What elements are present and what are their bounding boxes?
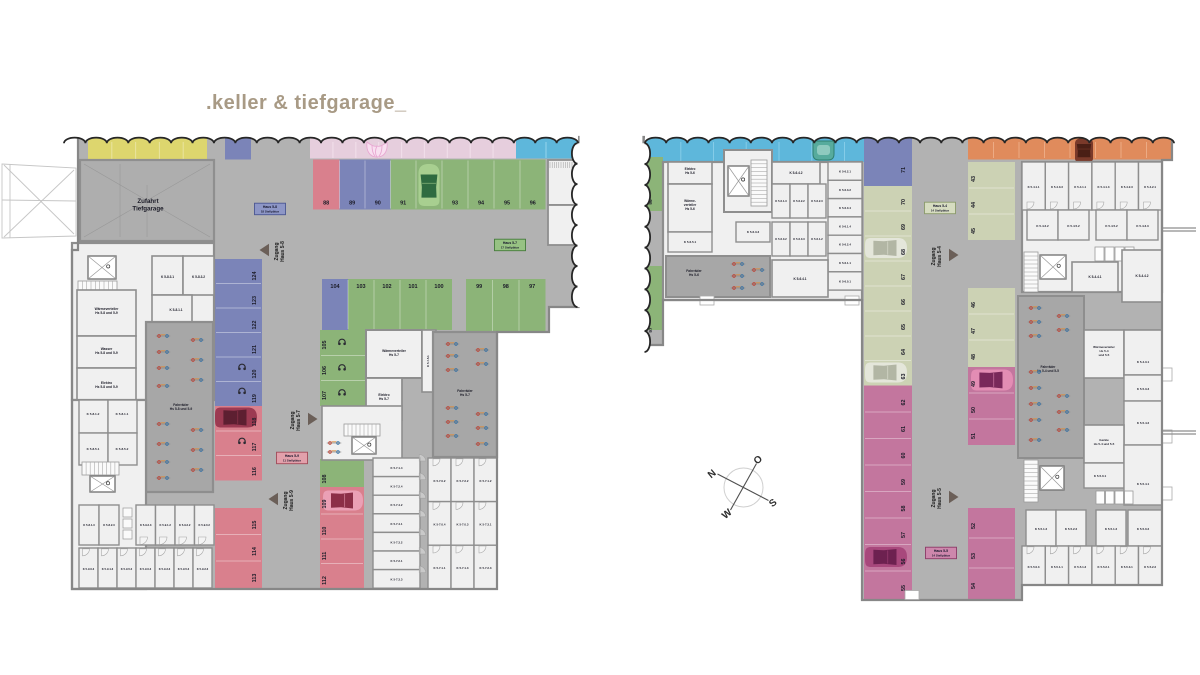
svg-text:57: 57 xyxy=(901,532,907,538)
svg-text:K 5-4.1.1: K 5-4.1.1 xyxy=(1028,185,1040,189)
svg-text:Hs 5-8 und 5-9: Hs 5-8 und 5-9 xyxy=(95,385,118,389)
svg-text:K 5-7.3.2: K 5-7.3.2 xyxy=(391,540,403,544)
svg-text:K 5-6.0.2: K 5-6.0.2 xyxy=(775,237,787,241)
svg-text:K 5-7.2.2: K 5-7.2.2 xyxy=(457,479,469,483)
svg-text:Hs 5-6: Hs 5-6 xyxy=(685,171,695,175)
svg-text:K 5-8.1.2: K 5-8.1.2 xyxy=(87,412,100,416)
svg-text:Haus 5-4: Haus 5-4 xyxy=(933,204,947,208)
svg-text:99: 99 xyxy=(476,284,482,290)
svg-text:K 5-7.0.2: K 5-7.0.2 xyxy=(434,479,446,483)
svg-text:K 5-9.3.3: K 5-9.3.3 xyxy=(159,567,171,571)
svg-text:89: 89 xyxy=(349,201,355,207)
svg-text:K 5-7.1.3: K 5-7.1.3 xyxy=(457,566,469,570)
svg-text:K 5-6.2.2: K 5-6.2.2 xyxy=(793,199,805,203)
svg-text:K 5-4.4.1: K 5-4.4.1 xyxy=(1088,275,1101,279)
svg-text:K 5-6.0.3: K 5-6.0.3 xyxy=(793,237,805,241)
svg-text:91: 91 xyxy=(400,201,406,207)
svg-text:115: 115 xyxy=(252,521,258,530)
svg-text:Hs 5-8 und 5-9: Hs 5-8 und 5-9 xyxy=(170,407,193,411)
svg-text:K 5-6.3.3: K 5-6.3.3 xyxy=(747,230,760,234)
svg-text:K 5-7.2.1: K 5-7.2.1 xyxy=(391,559,403,563)
svg-text:K 5-6.2.3: K 5-6.2.3 xyxy=(811,199,823,203)
svg-text:59: 59 xyxy=(901,479,907,485)
svg-text:K 5-5.3.3: K 5-5.3.3 xyxy=(1137,387,1150,391)
svg-text:119: 119 xyxy=(252,394,258,403)
svg-text:Haus 5-5: Haus 5-5 xyxy=(934,549,948,553)
svg-text:Hs 5-6: Hs 5-6 xyxy=(685,207,695,211)
svg-text:102: 102 xyxy=(382,284,391,290)
svg-text:K 5-9.0.2: K 5-9.0.2 xyxy=(198,523,210,527)
svg-text:100: 100 xyxy=(434,284,443,290)
svg-text:K 5-6.3.2: K 5-6.3.2 xyxy=(839,188,851,192)
svg-text:Hs 5-7: Hs 5-7 xyxy=(379,397,389,401)
svg-text:K 5-5.3.1: K 5-5.3.1 xyxy=(1121,565,1133,569)
svg-text:K 5-6.1.2: K 5-6.1.2 xyxy=(811,237,823,241)
svg-text:93: 93 xyxy=(452,201,458,207)
svg-text:K 5-4.2.1: K 5-4.2.1 xyxy=(1144,185,1156,189)
svg-text:K 5-9.2.2: K 5-9.2.2 xyxy=(179,523,191,527)
svg-text:Haus 5-4: Haus 5-4 xyxy=(937,246,943,267)
svg-text:69: 69 xyxy=(901,224,907,230)
svg-text:111: 111 xyxy=(322,552,328,560)
svg-text:K 5-6.1.4: K 5-6.1.4 xyxy=(839,224,851,228)
svg-text:96: 96 xyxy=(530,201,536,207)
svg-text:K 5-9.1.2: K 5-9.1.2 xyxy=(159,523,171,527)
svg-text:105: 105 xyxy=(322,341,328,350)
svg-text:Haus 5-9: Haus 5-9 xyxy=(289,490,295,511)
svg-text:K 5-5.1.1: K 5-5.1.1 xyxy=(1051,565,1063,569)
svg-text:K 5-4.4.2: K 5-4.4.2 xyxy=(1135,274,1148,278)
svg-text:K 5-5.0.3: K 5-5.0.3 xyxy=(1028,565,1040,569)
svg-text:52: 52 xyxy=(971,523,977,529)
svg-text:Hs 5-8 und 5-9: Hs 5-8 und 5-9 xyxy=(95,351,118,355)
svg-text:64: 64 xyxy=(901,349,907,355)
svg-text:.keller & tiefgarage_: .keller & tiefgarage_ xyxy=(206,92,407,114)
svg-text:K 5-5.0.1: K 5-5.0.1 xyxy=(1094,474,1107,478)
svg-text:123: 123 xyxy=(252,296,258,305)
svg-text:106: 106 xyxy=(322,366,328,375)
svg-text:K 5-7.0.3: K 5-7.0.3 xyxy=(457,523,469,527)
svg-text:K 5-6.4.1: K 5-6.4.1 xyxy=(793,277,806,281)
svg-text:58: 58 xyxy=(901,506,907,512)
svg-text:94: 94 xyxy=(478,201,485,207)
svg-text:K 5-7.3.1: K 5-7.3.1 xyxy=(480,523,492,527)
svg-text:K 5-8.2.3: K 5-8.2.3 xyxy=(103,523,115,527)
svg-text:48: 48 xyxy=(971,354,977,360)
svg-text:113: 113 xyxy=(252,574,258,583)
svg-text:121: 121 xyxy=(252,345,258,354)
svg-text:Haus 5-8: Haus 5-8 xyxy=(280,241,286,262)
svg-text:Haus 5-7: Haus 5-7 xyxy=(503,241,517,245)
svg-text:K 5-7.1.4: K 5-7.1.4 xyxy=(391,466,403,470)
svg-text:K 5-5.2.2: K 5-5.2.2 xyxy=(1065,527,1078,531)
svg-text:98: 98 xyxy=(503,284,509,290)
svg-text:122: 122 xyxy=(252,321,258,330)
svg-text:95: 95 xyxy=(504,201,510,207)
svg-text:K 5-7.1.1: K 5-7.1.1 xyxy=(434,566,446,570)
svg-text:K 5-7.0.4: K 5-7.0.4 xyxy=(434,523,446,527)
svg-text:K 5-4.5.2: K 5-4.5.2 xyxy=(1067,224,1080,228)
svg-text:K 5-4.3.3: K 5-4.3.3 xyxy=(1136,224,1149,228)
svg-text:K 5-7.4.2: K 5-7.4.2 xyxy=(391,503,403,507)
svg-text:53: 53 xyxy=(971,553,977,559)
svg-text:112: 112 xyxy=(322,576,328,585)
svg-text:K 5-6.5.1: K 5-6.5.1 xyxy=(684,240,697,244)
svg-text:49: 49 xyxy=(971,381,977,387)
svg-text:K 5-9.0.3: K 5-9.0.3 xyxy=(83,567,95,571)
svg-text:K 5-9.5.3: K 5-9.5.3 xyxy=(178,567,190,571)
svg-text:K 5-8.1.1: K 5-8.1.1 xyxy=(169,308,182,312)
svg-text:K 5-8.1.3: K 5-8.1.3 xyxy=(83,523,95,527)
svg-text:Tiefgarage: Tiefgarage xyxy=(132,206,164,213)
svg-text:K 5-8.5.1: K 5-8.5.1 xyxy=(87,447,100,451)
svg-text:116: 116 xyxy=(252,467,258,476)
svg-text:K 5-4.5.2: K 5-4.5.2 xyxy=(1105,224,1118,228)
svg-text:47: 47 xyxy=(971,328,977,334)
svg-text:Hs 5-8 und 5-9: Hs 5-8 und 5-9 xyxy=(95,311,118,315)
svg-text:K 5-6.4.2: K 5-6.4.2 xyxy=(789,171,802,175)
svg-text:68: 68 xyxy=(901,249,907,255)
svg-text:56: 56 xyxy=(901,559,907,565)
svg-text:K 5-9.2.3: K 5-9.2.3 xyxy=(197,567,209,571)
svg-text:17 Stellplätze: 17 Stellplätze xyxy=(501,246,520,250)
svg-text:66: 66 xyxy=(901,299,907,305)
svg-text:K 5-5.2.3: K 5-5.2.3 xyxy=(1144,565,1156,569)
svg-text:K 5-5.4.2: K 5-5.4.2 xyxy=(1137,421,1150,425)
svg-text:K 5-7.4.1: K 5-7.4.1 xyxy=(391,522,403,526)
svg-text:51: 51 xyxy=(971,433,977,439)
svg-text:K 5-4.3.1: K 5-4.3.1 xyxy=(1137,360,1150,364)
svg-text:61: 61 xyxy=(901,426,907,432)
svg-text:67: 67 xyxy=(901,274,907,280)
svg-text:K 5-7.2.4: K 5-7.2.4 xyxy=(391,485,403,489)
svg-text:K 5-9.1.3: K 5-9.1.3 xyxy=(102,567,114,571)
svg-text:K 5-4.1.3: K 5-4.1.3 xyxy=(1098,185,1110,189)
svg-text:K 5-7.5.1: K 5-7.5.1 xyxy=(426,355,430,367)
svg-text:45: 45 xyxy=(971,228,977,234)
svg-text:K 5-4.2.2: K 5-4.2.2 xyxy=(1036,224,1049,228)
svg-text:Hs 5-7: Hs 5-7 xyxy=(389,353,399,357)
svg-text:88: 88 xyxy=(323,201,329,207)
svg-text:62: 62 xyxy=(901,400,907,406)
svg-text:118: 118 xyxy=(252,418,258,427)
svg-text:K 5-7.1.2: K 5-7.1.2 xyxy=(480,479,492,483)
svg-text:43: 43 xyxy=(971,176,977,182)
svg-text:65: 65 xyxy=(901,324,907,330)
svg-text:K 5-8.1.1: K 5-8.1.1 xyxy=(116,412,129,416)
svg-text:K 5-5.1.3: K 5-5.1.3 xyxy=(1074,565,1086,569)
svg-text:55: 55 xyxy=(901,585,907,591)
svg-text:103: 103 xyxy=(356,284,365,290)
svg-text:K 5-6.2.4: K 5-6.2.4 xyxy=(839,243,851,247)
svg-text:Haus 5-8: Haus 5-8 xyxy=(263,205,277,209)
svg-text:Hs 5-4 und 5-5: Hs 5-4 und 5-5 xyxy=(1094,442,1115,446)
svg-text:117: 117 xyxy=(252,443,258,452)
svg-text:14 Stellplätze: 14 Stellplätze xyxy=(932,554,951,558)
svg-text:K 5-6.2.1: K 5-6.2.1 xyxy=(839,170,851,174)
svg-text:K 5-4.0.3: K 5-4.0.3 xyxy=(1051,185,1063,189)
svg-text:114: 114 xyxy=(252,547,258,556)
svg-text:44: 44 xyxy=(971,202,977,208)
svg-text:K 5-5.1.2: K 5-5.1.2 xyxy=(1105,527,1118,531)
svg-text:97: 97 xyxy=(529,284,535,290)
svg-text:120: 120 xyxy=(252,370,258,379)
svg-text:K 5-5.2.1: K 5-5.2.1 xyxy=(1098,565,1110,569)
svg-text:60: 60 xyxy=(901,453,907,459)
svg-text:Hs 5-7: Hs 5-7 xyxy=(460,393,470,397)
svg-text:50: 50 xyxy=(971,407,977,413)
svg-text:Haus 5-9: Haus 5-9 xyxy=(285,454,299,458)
svg-text:18 Stellplätze: 18 Stellplätze xyxy=(261,210,280,214)
svg-text:14 Stellplätze: 14 Stellplätze xyxy=(931,209,950,213)
svg-text:K 5-4.2.3: K 5-4.2.3 xyxy=(1121,185,1133,189)
svg-text:Zufahrt: Zufahrt xyxy=(137,198,158,205)
svg-text:Hs 5-6: Hs 5-6 xyxy=(689,273,699,277)
svg-text:K 5-5.4.1: K 5-5.4.1 xyxy=(1137,482,1150,486)
svg-text:K 5-6.0.1: K 5-6.0.1 xyxy=(839,279,851,283)
svg-text:63: 63 xyxy=(901,374,907,380)
svg-text:K 5-4.1.1: K 5-4.1.1 xyxy=(1074,185,1086,189)
svg-text:54: 54 xyxy=(971,583,977,589)
svg-text:71: 71 xyxy=(901,167,907,173)
svg-text:46: 46 xyxy=(971,302,977,308)
svg-text:11 Stellplätze: 11 Stellplätze xyxy=(283,459,302,463)
svg-text:70: 70 xyxy=(901,199,907,205)
svg-text:107: 107 xyxy=(322,391,328,400)
svg-text:und 5-5: und 5-5 xyxy=(1099,353,1110,357)
svg-text:110: 110 xyxy=(322,527,328,536)
svg-text:109: 109 xyxy=(322,500,328,509)
svg-text:K 5-9.5.2: K 5-9.5.2 xyxy=(121,567,133,571)
svg-text:Haus 5-7: Haus 5-7 xyxy=(296,410,302,431)
svg-text:K 5-6.0.4: K 5-6.0.4 xyxy=(839,206,851,210)
svg-text:K 5-9.0.3: K 5-9.0.3 xyxy=(140,567,152,571)
svg-text:K 5-8.3.1: K 5-8.3.1 xyxy=(161,275,174,279)
svg-text:K 5-7.3.3: K 5-7.3.3 xyxy=(391,578,403,582)
svg-text:K 5-7.2.3: K 5-7.2.3 xyxy=(480,566,492,570)
svg-text:K 5-5.0.2: K 5-5.0.2 xyxy=(1137,527,1150,531)
svg-text:124: 124 xyxy=(252,272,258,281)
svg-text:101: 101 xyxy=(408,284,417,290)
svg-text:K 5-5.1.2: K 5-5.1.2 xyxy=(1035,527,1048,531)
svg-text:K 5-8.3.2: K 5-8.3.2 xyxy=(192,275,205,279)
svg-text:108: 108 xyxy=(322,475,328,484)
svg-text:K 5-8.5.2: K 5-8.5.2 xyxy=(116,447,129,451)
svg-text:K 5-6.1.3: K 5-6.1.3 xyxy=(775,199,787,203)
svg-text:104: 104 xyxy=(330,284,340,290)
svg-text:Haus 5-5: Haus 5-5 xyxy=(937,488,943,509)
svg-text:K 5-6.1.1: K 5-6.1.1 xyxy=(839,261,851,265)
svg-text:90: 90 xyxy=(375,201,381,207)
svg-text:K 5-9.2.3: K 5-9.2.3 xyxy=(140,523,152,527)
